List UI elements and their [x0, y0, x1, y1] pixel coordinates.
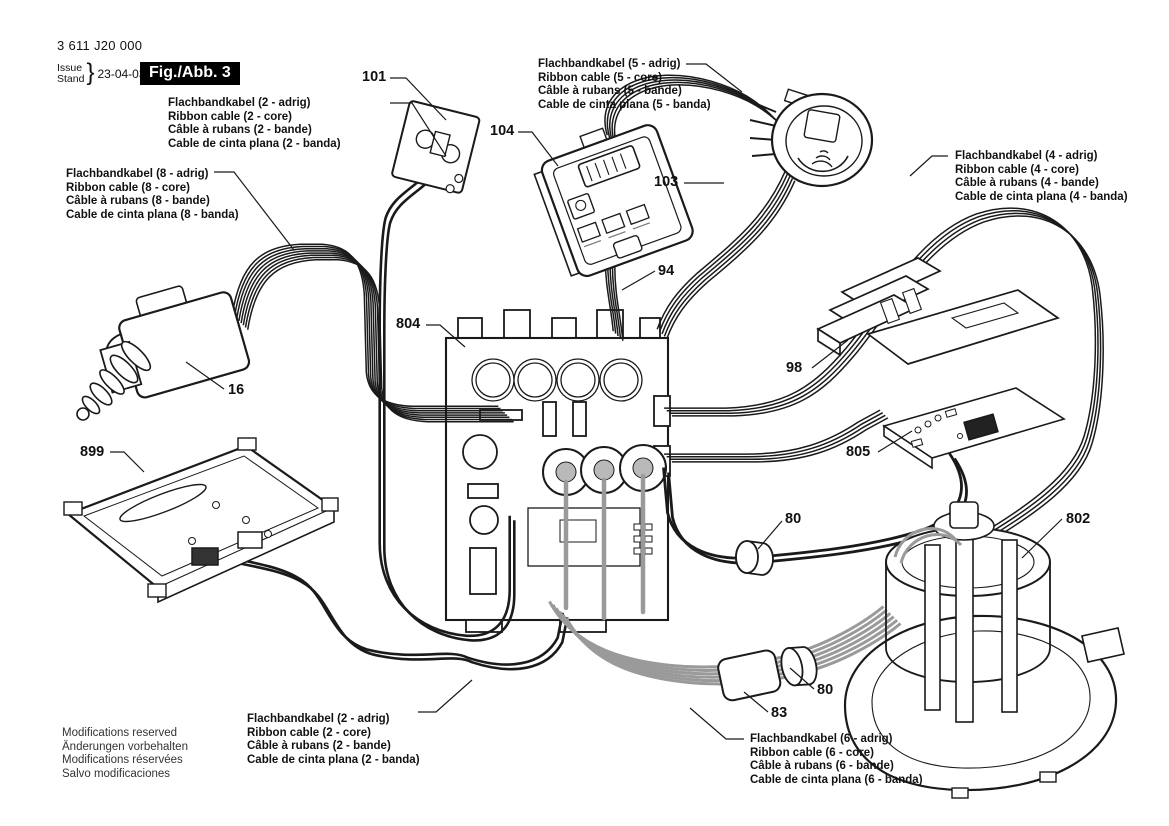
modifications-notice: Modifications reserved Änderungen vorbeh…	[62, 727, 188, 781]
callout-80-upper: 80	[785, 511, 801, 527]
cable-label-8core: Flachbandkabel (8 - adrig) Ribbon cable …	[66, 168, 239, 222]
callout-98: 98	[786, 360, 802, 376]
component-103-sensor	[750, 89, 872, 186]
label-line-fr: Câble à rubans (6 - bande)	[750, 760, 923, 774]
label-line-de: Flachbandkabel (2 - adrig)	[247, 713, 420, 727]
cable-label-2core-top: Flachbandkabel (2 - adrig) Ribbon cable …	[168, 97, 341, 151]
callout-802: 802	[1066, 511, 1090, 527]
label-line-de: Flachbandkabel (6 - adrig)	[750, 733, 923, 747]
component-98-connector	[818, 258, 1058, 364]
label-line-es: Cable de cinta plana (8 - banda)	[66, 209, 239, 223]
label-line-de: Flachbandkabel (4 - adrig)	[955, 150, 1128, 164]
component-16-switch	[77, 273, 251, 420]
label-line-es: Cable de cinta plana (6 - banda)	[750, 774, 923, 788]
cable-label-6core: Flachbandkabel (6 - adrig) Ribbon cable …	[750, 733, 923, 787]
callout-804: 804	[396, 316, 420, 332]
label-line-de: Flachbandkabel (8 - adrig)	[66, 168, 239, 182]
label-line-en: Ribbon cable (4 - core)	[955, 164, 1128, 178]
component-804-module	[446, 310, 670, 632]
label-line-fr: Câble à rubans (8 - bande)	[66, 195, 239, 209]
callout-101: 101	[362, 69, 386, 85]
callout-94: 94	[658, 263, 674, 279]
cable-label-5core: Flachbandkabel (5 - adrig) Ribbon cable …	[538, 58, 711, 112]
label-line-en: Ribbon cable (8 - core)	[66, 182, 239, 196]
label-line-fr: Câble à rubans (5 - bande)	[538, 85, 711, 99]
label-line-de: Flachbandkabel (2 - adrig)	[168, 97, 341, 111]
callout-899: 899	[80, 444, 104, 460]
component-104-control-panel	[527, 111, 695, 281]
notice-line-es: Salvo modificaciones	[62, 768, 188, 782]
label-line-fr: Câble à rubans (2 - bande)	[168, 124, 341, 138]
component-101-plate	[391, 100, 480, 195]
label-line-de: Flachbandkabel (5 - adrig)	[538, 58, 711, 72]
label-line-en: Ribbon cable (6 - core)	[750, 747, 923, 761]
callout-16: 16	[228, 382, 244, 398]
label-line-en: Ribbon cable (2 - core)	[247, 727, 420, 741]
label-line-en: Ribbon cable (5 - core)	[538, 72, 711, 86]
notice-line-fr: Modifications réservées	[62, 754, 188, 768]
issue-stand-block: Issue Stand } 23-04-03	[57, 59, 146, 89]
service-diagram-page: 3 611 J20 000 Issue Stand } 23-04-03 Fig…	[0, 0, 1169, 826]
cable-label-2core-bottom: Flachbandkabel (2 - adrig) Ribbon cable …	[247, 713, 420, 767]
label-line-es: Cable de cinta plana (5 - banda)	[538, 99, 711, 113]
issue-date: 23-04-03	[97, 67, 145, 81]
callout-805: 805	[846, 444, 870, 460]
cable-label-4core: Flachbandkabel (4 - adrig) Ribbon cable …	[955, 150, 1128, 204]
component-805-pcb	[884, 388, 1064, 468]
callout-103: 103	[654, 174, 678, 190]
label-line-es: Cable de cinta plana (2 - banda)	[247, 754, 420, 768]
notice-line-de: Änderungen vorbehalten	[62, 741, 188, 755]
brace-glyph: }	[86, 59, 94, 87]
callout-80-lower: 80	[817, 682, 833, 698]
label-line-fr: Câble à rubans (4 - bande)	[955, 177, 1128, 191]
stand-label: Stand	[57, 73, 84, 85]
grommet-80-upper	[736, 541, 773, 575]
figure-label-badge: Fig./Abb. 3	[140, 62, 240, 85]
document-part-number: 3 611 J20 000	[57, 38, 142, 53]
label-line-es: Cable de cinta plana (2 - banda)	[168, 138, 341, 152]
label-line-fr: Câble à rubans (2 - bande)	[247, 740, 420, 754]
callout-83: 83	[771, 705, 787, 721]
notice-line-en: Modifications reserved	[62, 727, 188, 741]
callout-104: 104	[490, 123, 514, 139]
sleeve-83	[717, 649, 782, 702]
label-line-es: Cable de cinta plana (4 - banda)	[955, 191, 1128, 205]
label-line-en: Ribbon cable (2 - core)	[168, 111, 341, 125]
issue-stand-labels: Issue Stand	[57, 63, 84, 85]
